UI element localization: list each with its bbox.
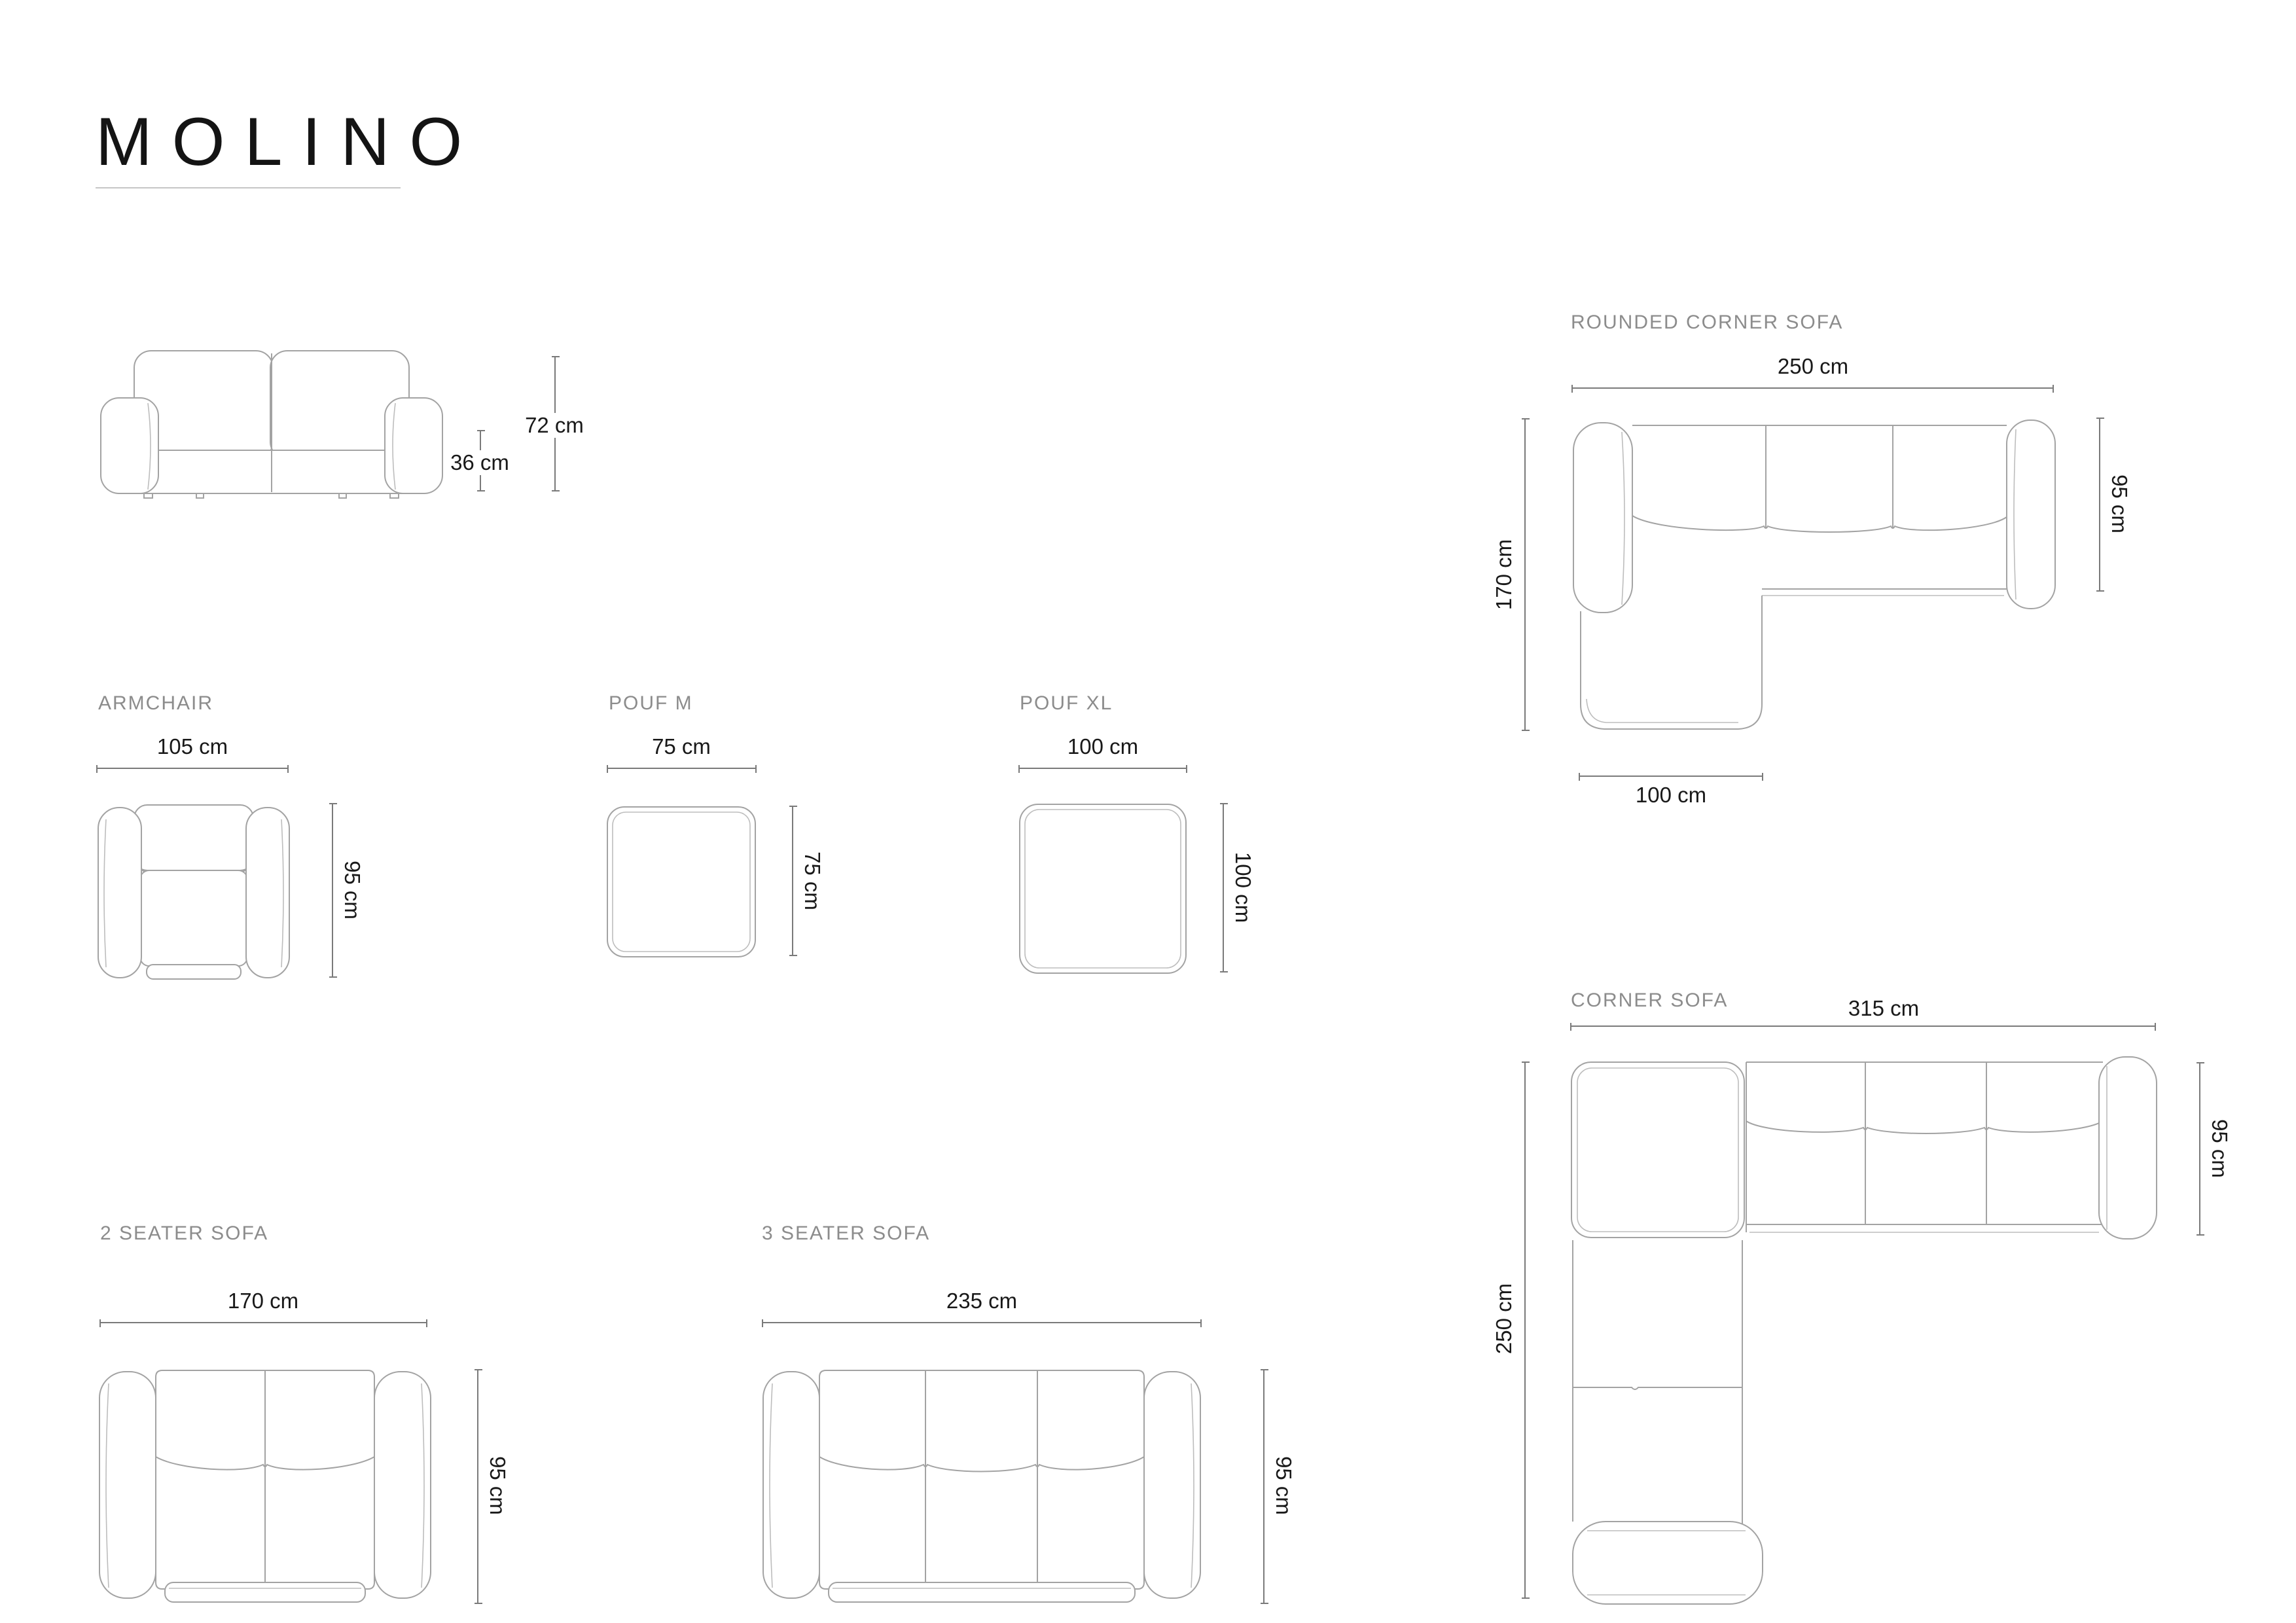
pouf-m-drawing — [607, 806, 756, 957]
rounded-corner-sofa-width-dim-line — [1572, 387, 2053, 389]
corner-sofa-depth-left-dim: 250 cm — [1492, 1283, 1516, 1354]
rounded-corner-sofa-depth-right-dim-line — [2099, 418, 2100, 591]
pouf-xl-label: POUF XL — [1020, 692, 1113, 715]
armchair-width-dim: 105 cm — [157, 734, 228, 759]
two-seater-depth-dim: 95 cm — [485, 1456, 510, 1515]
three-seater-depth-dim-line — [1263, 1370, 1265, 1603]
rounded-corner-sofa-chaise-dim-line — [1579, 776, 1763, 777]
pouf-m-width-dim-line — [607, 768, 756, 769]
pouf-xl-width-dim-line — [1019, 768, 1187, 769]
pouf-xl-depth-dim: 100 cm — [1230, 852, 1255, 923]
rounded-corner-sofa-label: ROUNDED CORNER SOFA — [1571, 312, 1843, 334]
rounded-corner-sofa-depth-right-dim: 95 cm — [2107, 474, 2132, 533]
pouf-xl-depth-dim-line — [1223, 804, 1224, 972]
pouf-m-depth-dim: 75 cm — [800, 851, 825, 910]
corner-sofa-width-dim-line — [1571, 1026, 2155, 1027]
two-seater-width-dim: 170 cm — [228, 1289, 298, 1313]
pouf-m-depth-dim-line — [792, 806, 793, 955]
armchair-width-dim-line — [97, 768, 288, 769]
corner-sofa-width-dim: 315 cm — [1848, 996, 1919, 1021]
rounded-corner-sofa-depth-left-dim: 170 cm — [1492, 539, 1516, 610]
rounded-corner-sofa-depth-left-dim-line — [1524, 419, 1526, 730]
page-title: MOLINO — [96, 103, 482, 181]
two-seater-depth-dim-line — [477, 1370, 478, 1603]
front-view-drawing — [98, 346, 445, 501]
pouf-xl-width-dim: 100 cm — [1067, 734, 1138, 759]
two-seater-label: 2 SEATER SOFA — [100, 1222, 268, 1245]
molino-dimension-sheet: MOLINO 36 cm 72 cm ARMCHAIR 105 cm 95 cm… — [0, 0, 2296, 1623]
three-seater-width-dim-line — [762, 1322, 1201, 1323]
three-seater-depth-dim: 95 cm — [1271, 1456, 1296, 1515]
front-seat-height-dim: 36 cm — [446, 450, 513, 475]
armchair-depth-dim: 95 cm — [340, 861, 365, 919]
pouf-xl-drawing — [1019, 804, 1187, 974]
corner-sofa-depth-right-dim: 95 cm — [2207, 1119, 2232, 1178]
rounded-corner-sofa-drawing — [1570, 418, 2057, 735]
three-seater-width-dim: 235 cm — [946, 1289, 1017, 1313]
corner-sofa-drawing — [1568, 1056, 2160, 1609]
armchair-depth-dim-line — [332, 804, 333, 977]
armchair-label: ARMCHAIR — [98, 692, 213, 715]
pouf-m-width-dim: 75 cm — [652, 734, 711, 759]
rounded-corner-sofa-width-dim: 250 cm — [1778, 354, 1848, 379]
corner-sofa-depth-right-dim-line — [2199, 1063, 2200, 1235]
pouf-m-label: POUF M — [609, 692, 693, 715]
corner-sofa-depth-left-dim-line — [1524, 1062, 1526, 1598]
corner-sofa-label: CORNER SOFA — [1571, 990, 1728, 1012]
two-seater-drawing — [98, 1366, 433, 1605]
three-seater-label: 3 SEATER SOFA — [762, 1222, 930, 1245]
rounded-corner-sofa-chaise-dim: 100 cm — [1636, 783, 1706, 808]
three-seater-drawing — [762, 1366, 1202, 1605]
two-seater-width-dim-line — [100, 1322, 427, 1323]
title-underline — [96, 187, 401, 188]
armchair-drawing — [97, 802, 291, 982]
front-height-dim: 72 cm — [521, 413, 588, 438]
